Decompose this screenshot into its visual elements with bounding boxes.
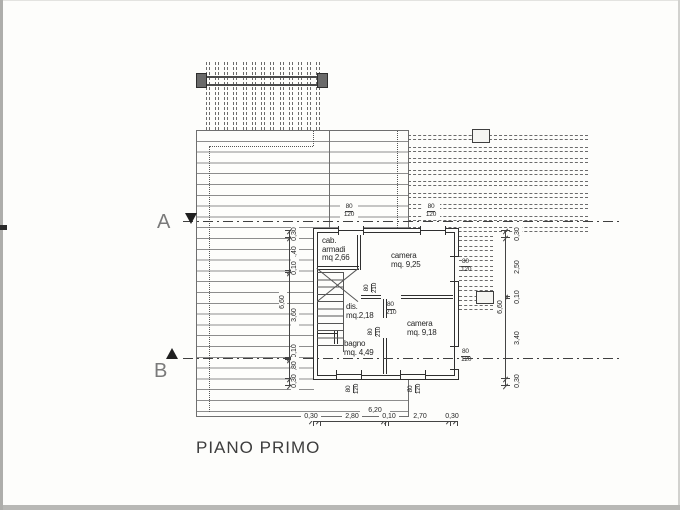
dashed-beam [408, 193, 588, 198]
section-b-line [183, 358, 623, 359]
dim-line-right [505, 230, 506, 385]
dashed-beam-short [459, 305, 493, 310]
dim-seg-label: 2,70 [410, 413, 430, 421]
dashed-beam-short [459, 236, 493, 241]
dotted-outline-right [397, 131, 398, 228]
section-b-arrow [166, 348, 178, 359]
dashed-beam [408, 147, 588, 152]
dim-seg-label: 0,10 [514, 286, 522, 308]
dashed-beam-short [459, 246, 493, 251]
dim-seg-label: 2,50 [514, 256, 522, 278]
dim-total-left: 6,60 [279, 291, 287, 313]
wall-cab-right [357, 232, 361, 270]
section-a-letter: A [157, 211, 170, 234]
edge-mark [0, 225, 7, 230]
page-title: PIANO PRIMO [196, 438, 320, 458]
window-top-2 [420, 226, 446, 235]
wall-camera1-bottom [401, 295, 453, 299]
dim-seg-label: 3,60 [291, 304, 299, 326]
window-size-label: 80120 [461, 259, 477, 273]
pergola-beam-cap [317, 73, 328, 88]
stairs-lower [317, 301, 344, 352]
section-b-letter: B [154, 360, 167, 383]
pergola-post [307, 62, 311, 130]
dashed-beam [408, 181, 588, 186]
beam-block [472, 129, 490, 143]
roof-ridge-line [329, 130, 330, 228]
section-a-line [183, 221, 623, 222]
dim-seg-label: 0,30 [301, 413, 321, 421]
door-size-label: 80210 [368, 323, 382, 341]
door-size-label: 80210 [386, 302, 400, 316]
dim-tick [501, 385, 510, 386]
room-label-camera1: camera mq. 9,25 [391, 252, 421, 269]
pergola-beam-cap [196, 73, 207, 88]
dotted-outline-step [313, 131, 314, 146]
dashed-beam [408, 170, 588, 175]
dashed-beam-short [459, 276, 493, 281]
dim-tick [501, 378, 510, 379]
pergola-beam [200, 76, 322, 86]
wall-cab-bottom [317, 266, 359, 270]
dim-total-right: 6,60 [497, 296, 505, 318]
window-size-label: 80120 [422, 204, 440, 218]
wall-dis-camera2 [383, 338, 387, 374]
window-size-label: 80120 [461, 349, 477, 363]
pergola-post [224, 62, 228, 130]
room-label-bagno: bagno mq. 4,49 [344, 340, 374, 357]
room-label-cab-armadi: cab. armadi mq 2,66 [322, 237, 350, 263]
pergola-post [215, 62, 219, 130]
dim-seg-label: 0,30 [442, 413, 462, 421]
dim-seg-label: 0,30 [291, 370, 299, 392]
window-size-label: 80120 [340, 204, 358, 218]
dim-tick [501, 237, 510, 238]
dim-line-left [289, 230, 290, 385]
dashed-beam [408, 135, 588, 140]
pergola-post [289, 62, 293, 130]
pergola-post [243, 62, 247, 130]
dotted-outline-left [209, 146, 210, 412]
dim-seg-label: 0,30 [514, 370, 522, 392]
door-size-label: 80210 [364, 279, 378, 297]
window-bottom-2 [400, 370, 426, 379]
pergola-post [270, 62, 274, 130]
dim-seg-label: 3,40 [514, 327, 522, 349]
window-size-label: 80120 [408, 379, 422, 399]
dim-seg-label: 0,30 [514, 223, 522, 245]
window-bottom-1 [336, 370, 362, 379]
pergola-post [298, 62, 302, 130]
dim-seg-label: 0,10 [291, 257, 299, 279]
floor-plan-drawing: 80120 80120 80120 80120 80120 80120 8021… [0, 0, 680, 510]
room-label-camera2: camera mq. 9,18 [407, 320, 437, 337]
pergola-post [252, 62, 256, 130]
pergola-post [261, 62, 265, 130]
pergola-post [280, 62, 284, 130]
section-a-arrow [185, 213, 197, 224]
dim-tick [501, 230, 510, 231]
dashed-beam [408, 158, 588, 163]
dim-seg-label: 0,10 [379, 413, 399, 421]
window-right-1 [450, 256, 459, 282]
room-label-dis: dis. mq.2,18 [346, 303, 374, 320]
pergola-post [233, 62, 237, 130]
dim-seg-label: 2,80 [342, 413, 362, 421]
beam-block [476, 291, 494, 304]
dotted-outline-top [209, 146, 313, 147]
window-top-1 [338, 226, 364, 235]
window-size-label: 80120 [346, 379, 360, 399]
paper-patch [314, 378, 407, 396]
